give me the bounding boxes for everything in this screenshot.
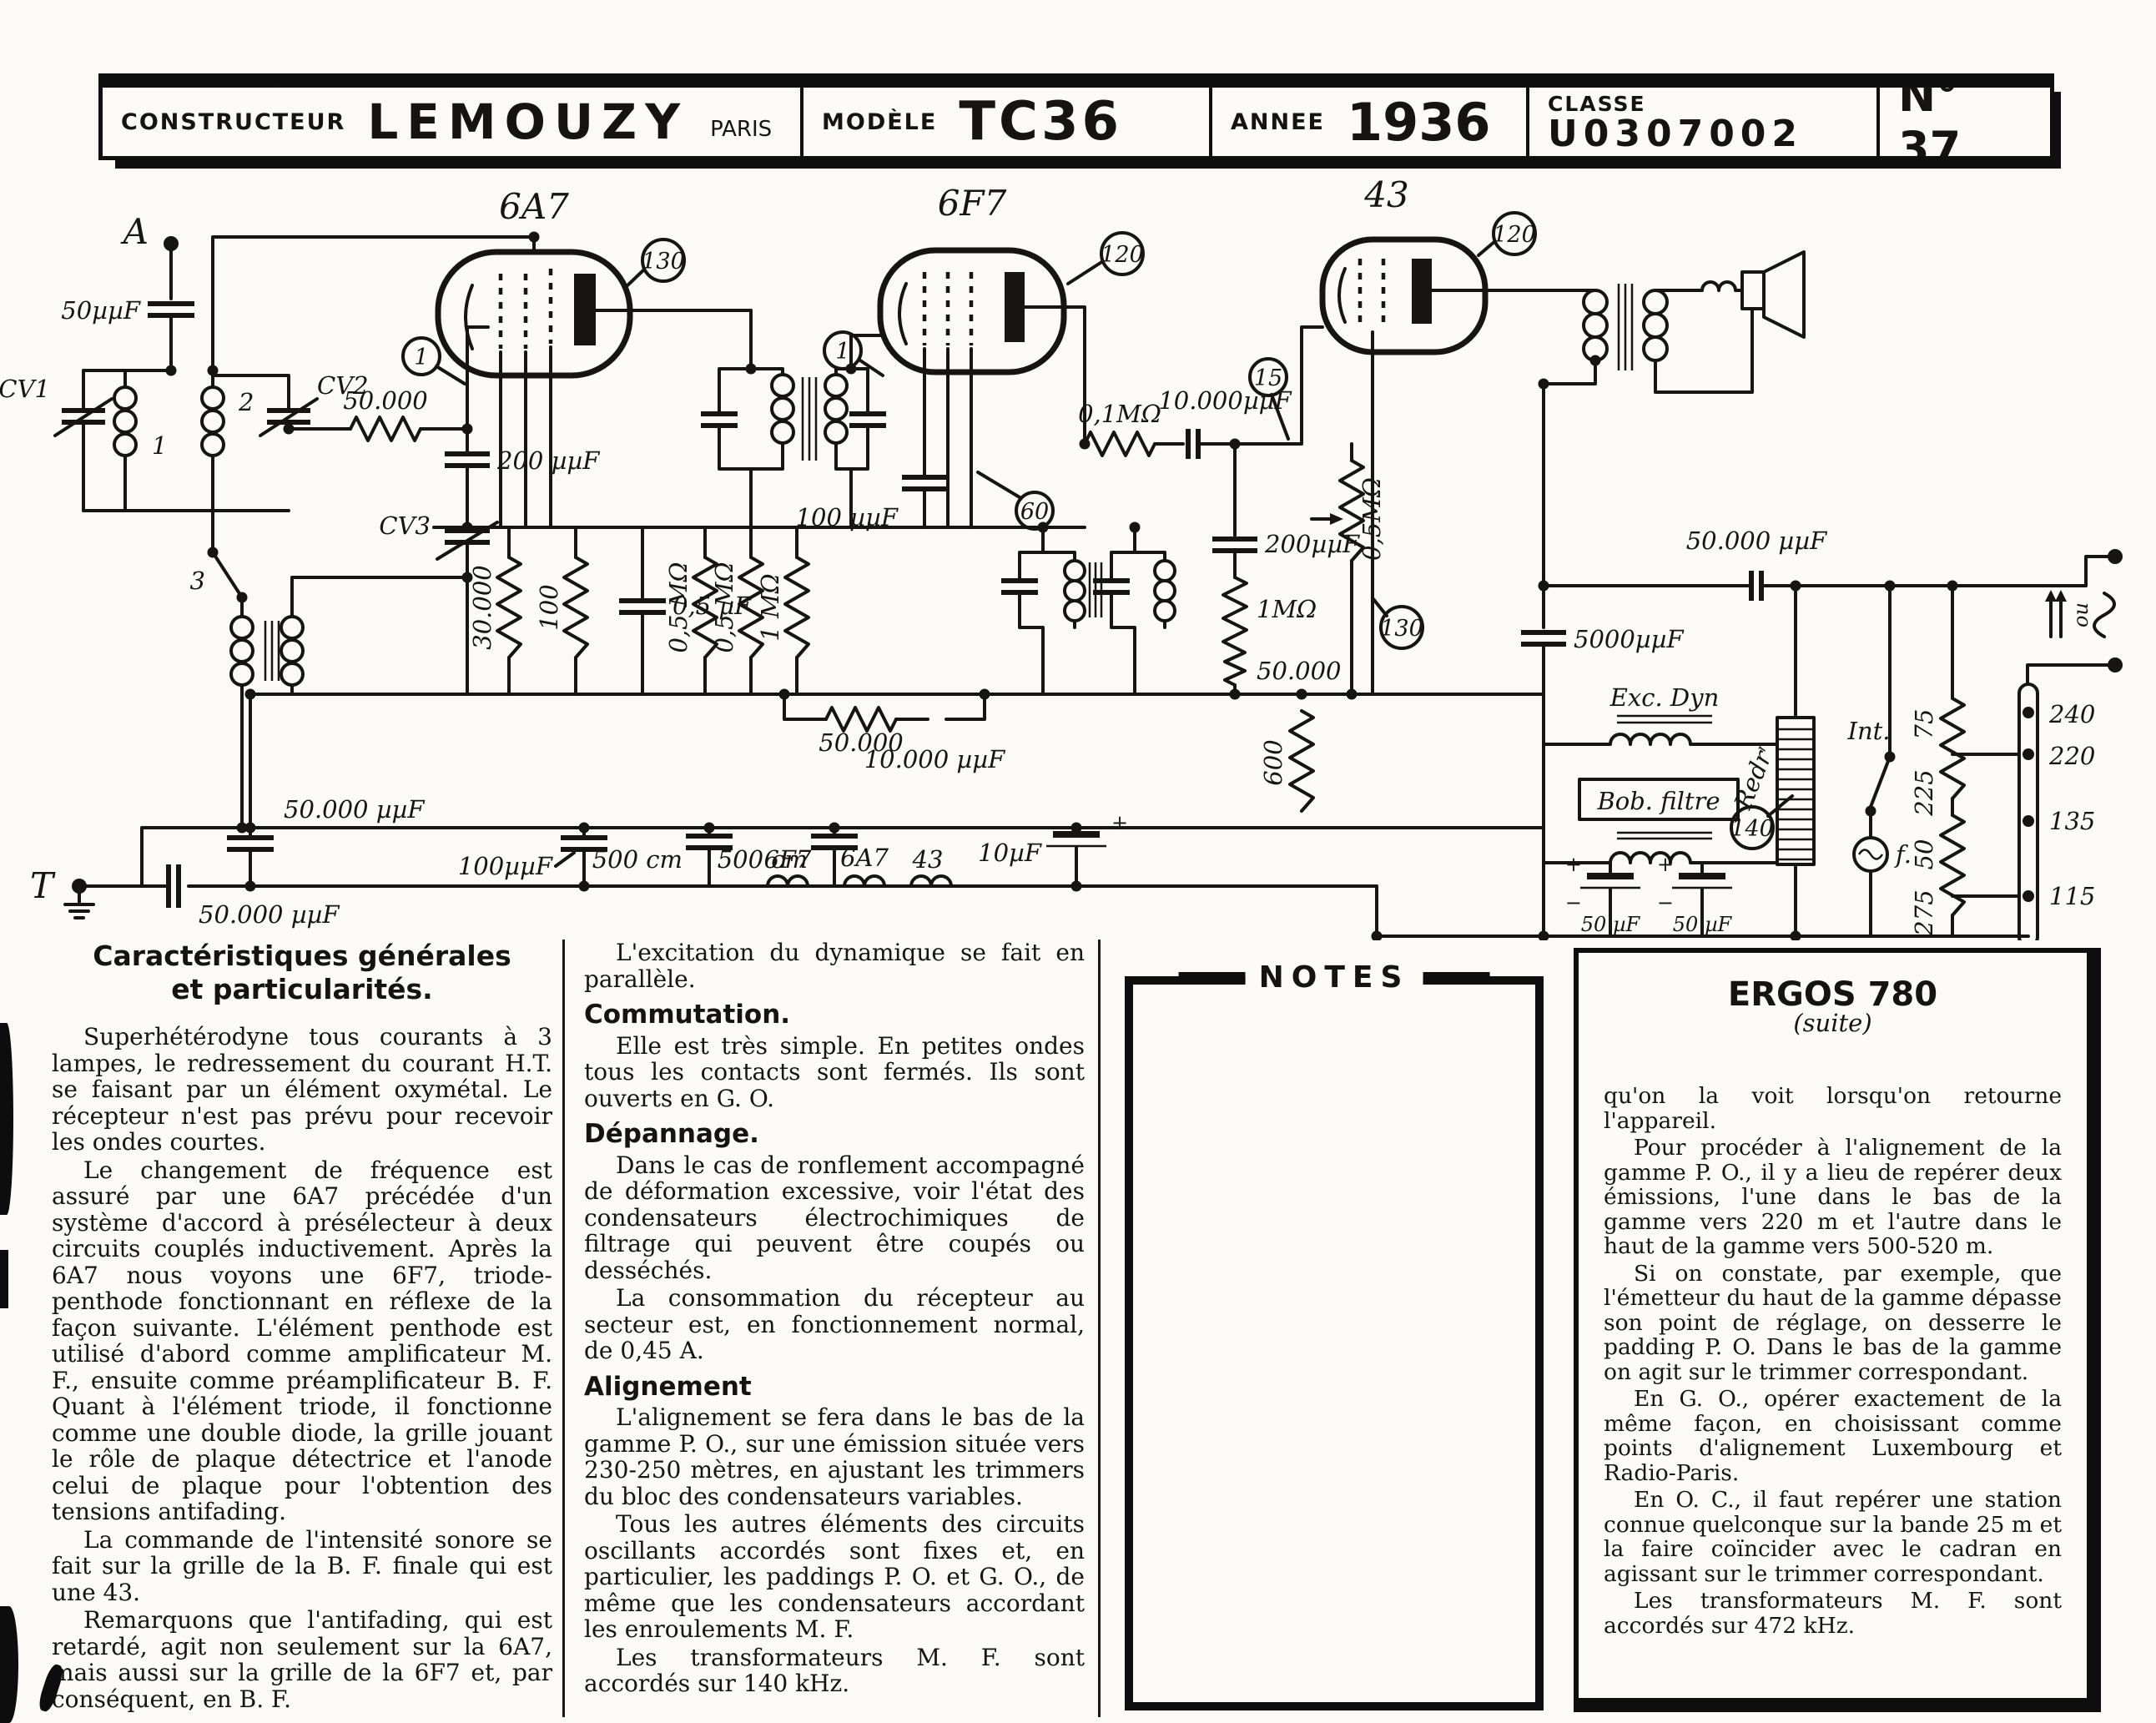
heading-depannage: Dépannage. xyxy=(584,1121,1085,1148)
lbl-tap-115: 115 xyxy=(2049,882,2095,910)
modele-value: TC36 xyxy=(959,91,1122,153)
lbl-plus-b: + xyxy=(1657,853,1674,876)
rectifier-hatch xyxy=(1779,729,1812,859)
lbl-r01M: 0,1MΩ xyxy=(1078,400,1161,428)
scan-artifact xyxy=(0,1250,8,1308)
tube-6f7-anode xyxy=(1005,272,1025,342)
circuit-schematic: ou 1 130 1 120 60 15 130 120 140 A 50µµF… xyxy=(0,160,2156,940)
lbl-c50uF-a: 50 µF xyxy=(1581,913,1641,936)
lbl-div-75: 75 xyxy=(1910,709,1938,740)
lbl-r100: 100 xyxy=(535,584,563,630)
lbl-fil-6a7: 6A7 xyxy=(840,844,889,872)
col2-paragraph: Les transformateurs M. F. sont accordés … xyxy=(584,1645,1085,1697)
lbl-50uuF: 50µµF xyxy=(61,296,141,325)
heading-alignement: Alignement xyxy=(584,1374,1085,1401)
heading-commutation: Commutation. xyxy=(584,1002,1085,1029)
lbl-c50k-T: 50.000 µµF xyxy=(199,900,340,929)
lbl-c200-a: 200 µµF xyxy=(496,446,600,475)
lbl-c10uF: 10µF xyxy=(978,839,1042,867)
scan-artifact xyxy=(0,1023,13,1215)
ergos-paragraph: Les transformateurs M. F. sont accordés … xyxy=(1604,1589,2062,1638)
wires-6a7 xyxy=(434,310,1085,527)
lbl-redresseur: Redrʳ xyxy=(1728,739,1780,814)
notes-title-bar-left xyxy=(1179,972,1246,985)
modele-label: MODÈLE xyxy=(822,109,937,135)
scan-artifact xyxy=(0,1606,18,1723)
lbl-c500-a: 500 cm xyxy=(592,845,683,874)
numero-value: N° 37 xyxy=(1898,88,2032,156)
tube-43-anode xyxy=(1412,259,1432,324)
col1-paragraph: Le changement de fréquence est assuré pa… xyxy=(52,1157,552,1525)
lbl-coil2: 2 xyxy=(238,388,254,416)
lbl-tube-43: 43 xyxy=(1363,174,1408,215)
lbl-minus-b: − xyxy=(1657,891,1674,914)
notes-title-bar-right xyxy=(1423,972,1489,985)
lbl-tap-135: 135 xyxy=(2049,807,2095,835)
col1-paragraph: Remarquons que l'antifading, qui est ret… xyxy=(52,1607,552,1712)
lbl-c50k-b: 50.000 µµF xyxy=(1686,526,1827,555)
col2-paragraph: Tous les autres éléments des circuits os… xyxy=(584,1511,1085,1643)
column-rule-2 xyxy=(1098,940,1101,1717)
lbl-r1M-a: 1 MΩ xyxy=(756,573,784,641)
ref-130-43: 130 xyxy=(1380,616,1423,642)
lbl-div-225: 225 xyxy=(1910,769,1938,816)
tube-43-envelope xyxy=(1322,239,1485,352)
mains-symbol: ou xyxy=(2045,590,2114,637)
tube-6a7-anode xyxy=(574,274,596,345)
lbl-fil-43: 43 xyxy=(912,845,944,874)
lbl-r50k-a: 50.000 xyxy=(343,386,427,415)
lbl-r50k-c: 50.000 xyxy=(1257,657,1341,685)
column-commutation-depannage: L'excitation du dynamique se fait en par… xyxy=(584,940,1085,1699)
lbl-r600: 600 xyxy=(1259,739,1287,785)
service-sheet: { "header": { "constructeur_label": "CON… xyxy=(0,0,2156,1722)
lbl-c10k-b: 10.000µµF xyxy=(1158,386,1292,415)
ref-120-43: 120 xyxy=(1493,222,1536,248)
ergos-paragraph: Si on constate, par exemple, que l'émett… xyxy=(1604,1262,2062,1385)
lbl-r05M-b: 0,5 MΩ xyxy=(710,562,738,652)
ergos-paragraph: En O. C., il faut repérer une station co… xyxy=(1604,1488,2062,1586)
modele-cell: MODÈLE TC36 xyxy=(803,88,1212,156)
annee-cell: ANNEE 1936 xyxy=(1212,88,1529,156)
lbl-plus-a: + xyxy=(1565,853,1582,876)
scan-artifact xyxy=(275,77,281,83)
ergos-paragraph: Pour procéder à l'alignement de la gamme… xyxy=(1604,1136,2062,1259)
classe-value: U0307002 xyxy=(1548,116,1803,153)
annee-label: ANNEE xyxy=(1231,109,1325,135)
lbl-c200-b: 200µµF xyxy=(1264,530,1360,558)
title-block: CONSTRUCTEUR LEMOUZY PARIS MODÈLE TC36 A… xyxy=(98,73,2054,160)
lbl-div-275: 275 xyxy=(1910,889,1938,936)
constructeur-label: CONSTRUCTEUR xyxy=(121,109,345,135)
ref-130-6a7: 130 xyxy=(642,249,685,275)
lbl-c100-b: 100 µµF xyxy=(796,503,899,532)
ref-140: 140 xyxy=(1730,816,1774,842)
notes-box: NOTES xyxy=(1125,976,1544,1710)
col2-paragraph: Dans le cas de ronflement accompagné de … xyxy=(584,1152,1085,1284)
col2-paragraph: L'excitation du dynamique se fait en par… xyxy=(584,940,1085,992)
lbl-minus-a: − xyxy=(1565,891,1582,914)
notes-title: NOTES xyxy=(1246,961,1423,995)
pot-arrowhead xyxy=(1330,513,1343,525)
ref-60: 60 xyxy=(1020,499,1049,525)
lbl-cv1: CV1 xyxy=(0,375,50,403)
lbl-r30000: 30.000 xyxy=(468,565,496,649)
tube-grids xyxy=(501,259,1383,349)
ref-1-6f7: 1 xyxy=(835,339,849,365)
col1-paragraph: Superhétérodyne tous courants à 3 lampes… xyxy=(52,1024,552,1156)
ref-1-6a7: 1 xyxy=(414,345,428,370)
speaker-coil-body xyxy=(1742,272,1764,309)
electrolytic-foils xyxy=(1046,846,1732,888)
lbl-coil1: 1 xyxy=(152,431,167,460)
lbl-c100uuF: 100µµF xyxy=(458,852,553,880)
ergos-title: ERGOS 780 xyxy=(1604,983,2062,1008)
lbl-exc-dyn: Exc. Dyn xyxy=(1609,683,1720,712)
lbl-c5000: 5000µµF xyxy=(1574,625,1684,653)
ergos-paragraph: En G. O., opérer exactement de la même f… xyxy=(1604,1387,2062,1485)
antenna-label: A xyxy=(120,211,149,252)
annee-value: 1936 xyxy=(1347,92,1491,153)
lbl-c50k-a: 50.000 µµF xyxy=(284,795,425,824)
lbl-tap-240: 240 xyxy=(2048,700,2095,728)
lbl-terre: T xyxy=(30,865,56,906)
lbl-sw3: 3 xyxy=(190,567,205,595)
lbl-c10k-a: 10.000 µµF xyxy=(864,745,1005,773)
lbl-interrupteur: Int. xyxy=(1846,717,1890,745)
col1-heading-line1: Caractéristiques générales xyxy=(52,943,552,970)
classe-cell: CLASSE U0307002 xyxy=(1529,88,1880,156)
lbl-r05M-c: 0,5MΩ xyxy=(1358,477,1386,561)
constructeur-value: LEMOUZY xyxy=(367,93,688,150)
lbl-c50uF-b: 50 µF xyxy=(1673,913,1733,936)
lbl-plus-10uF: + xyxy=(1111,811,1128,834)
numero-cell: N° 37 xyxy=(1880,88,2050,156)
ergos-subtitle: (suite) xyxy=(1604,1011,2062,1036)
speaker-horn xyxy=(1764,252,1804,337)
col2-paragraph: L'alignement se fera dans le bas de la g… xyxy=(584,1404,1085,1509)
lbl-f-lamp: f. xyxy=(1894,840,1912,869)
ref-120-6f7: 120 xyxy=(1101,242,1144,268)
column-caracteristiques: Caractéristiques générales et particular… xyxy=(52,940,552,1714)
lbl-tube-6a7: 6A7 xyxy=(499,186,569,227)
lbl-fil-6f7: 6F7 xyxy=(763,845,812,874)
column-rule-1 xyxy=(562,940,565,1717)
lbl-tap-220: 220 xyxy=(2048,742,2095,770)
col2-paragraph: Elle est très simple. En petites ondes t… xyxy=(584,1033,1085,1112)
col1-heading-line2: et particularités. xyxy=(52,976,552,1003)
ergos-paragraph: qu'on la voit lorsqu'on retourne l'appar… xyxy=(1604,1084,2062,1133)
col2-paragraph: La consommation du récepteur au secteur … xyxy=(584,1285,1085,1364)
lbl-cv3: CV3 xyxy=(379,511,431,540)
lbl-bob-filtre: Bob. filtre xyxy=(1596,787,1720,815)
lbl-r1M-b: 1MΩ xyxy=(1257,595,1317,623)
ergos-box: ERGOS 780 (suite) qu'on la voit lorsqu'o… xyxy=(1574,948,2101,1712)
col1-paragraph: La commande de l'intensité sonore se fai… xyxy=(52,1527,552,1606)
constructeur-cell: CONSTRUCTEUR LEMOUZY PARIS xyxy=(103,88,803,156)
lbl-r05M-a: 0,5 MΩ xyxy=(664,562,693,652)
lbl-tube-6f7: 6F7 xyxy=(938,183,1007,224)
constructeur-city: PARIS xyxy=(710,117,772,142)
lbl-div-50: 50 xyxy=(1910,839,1938,870)
mains-ou-label: ou xyxy=(2069,602,2093,627)
